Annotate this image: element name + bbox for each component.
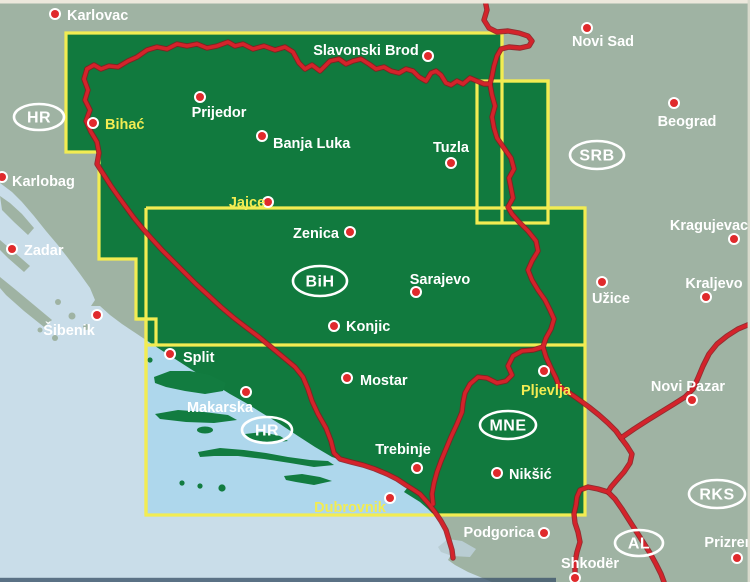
city-dot (343, 374, 351, 382)
city-label: Konjic (346, 319, 390, 335)
city-label: Novi Sad (572, 34, 634, 50)
city-dot (258, 132, 266, 140)
city-label: Tuzla (433, 140, 470, 156)
city-dot (412, 288, 420, 296)
city-dot (571, 574, 579, 582)
city-label: Podgorica (464, 525, 536, 541)
city-dot (424, 52, 432, 60)
city-dot (8, 245, 16, 253)
city-dot (346, 228, 354, 236)
city-label: Slavonski Brod (313, 43, 419, 59)
city-dot (93, 311, 101, 319)
city-dot (540, 529, 548, 537)
map-svg: KarlovacSlavonski BrodNovi SadBeogradBih… (0, 0, 750, 582)
scan-edge-bottom (0, 578, 556, 582)
city-dot (386, 494, 394, 502)
city-dot (583, 24, 591, 32)
city-label: Split (183, 350, 215, 366)
city-dot (330, 322, 338, 330)
city-label: Kraljevo (685, 276, 742, 292)
city-dot (688, 396, 696, 404)
city-label: Šibenik (43, 321, 96, 339)
city-label: Makarska (187, 400, 254, 416)
city-label: Bihać (105, 117, 145, 133)
city-dot (598, 278, 606, 286)
code-label: HR (255, 423, 279, 440)
city-label: Dubrovnik (314, 500, 387, 516)
city-label: Sarajevo (410, 272, 471, 288)
city-dot (242, 388, 250, 396)
city-label: Beograd (658, 114, 717, 130)
city-dot (540, 367, 548, 375)
city-label: Pljevlja (521, 383, 572, 399)
city-dot (733, 554, 741, 562)
city-label: Nikšić (509, 467, 552, 483)
city-dot (51, 10, 59, 18)
city-dot (196, 93, 204, 101)
city-label: Trebinje (375, 442, 431, 458)
city-dot (264, 198, 272, 206)
city-label: Banja Luka (273, 136, 351, 152)
code-label: MNE (489, 418, 526, 435)
city-dot (89, 119, 97, 127)
city-label: Karlovac (67, 8, 128, 24)
city-label: Kragujevac (670, 218, 748, 234)
city-marker: Karlobag (0, 171, 75, 190)
city-dot (413, 464, 421, 472)
map-scan: KarlovacSlavonski BrodNovi SadBeogradBih… (0, 0, 750, 582)
city-label: Shkodër (561, 556, 619, 572)
city-dot (730, 235, 738, 243)
city-dot (670, 99, 678, 107)
city-dot (166, 350, 174, 358)
city-label: Zadar (24, 243, 64, 259)
city-label: Mostar (360, 373, 408, 389)
city-label: Jajce (229, 195, 265, 211)
city-label: Zenica (293, 226, 340, 242)
city-dot (493, 469, 501, 477)
code-label: HR (27, 110, 51, 127)
city-label: Novi Pazar (651, 379, 725, 395)
city-label: Prijedor (192, 105, 247, 121)
city-dot (447, 159, 455, 167)
city-label: Karlobag (12, 174, 75, 190)
city-label: Užice (592, 291, 630, 307)
city-dot (702, 293, 710, 301)
city-label: Prizren (704, 535, 750, 551)
code-label: RKS (699, 487, 734, 504)
code-label: BiH (305, 274, 334, 291)
scan-edge-top (0, 0, 750, 4)
code-label: AL (628, 536, 650, 553)
code-label: SRB (579, 148, 614, 165)
